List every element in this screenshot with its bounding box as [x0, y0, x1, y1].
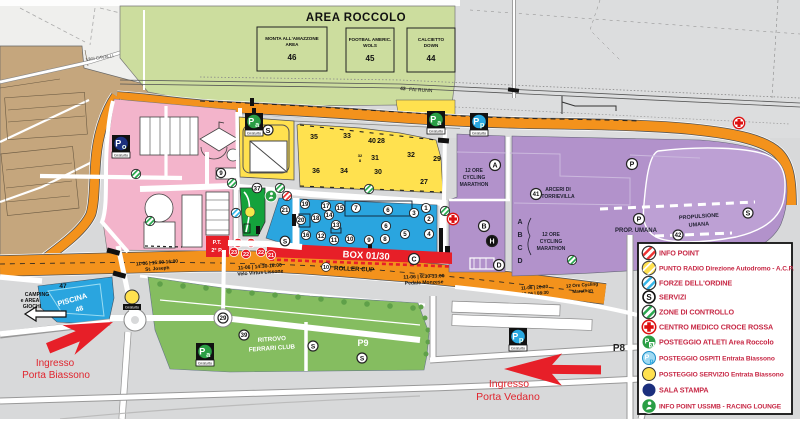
svg-text:POSTEGGIO OSPITI Entrata Biass: POSTEGGIO OSPITI Entrata Biassono — [659, 356, 775, 363]
svg-text:o: o — [122, 142, 127, 151]
svg-text:17: 17 — [323, 203, 330, 210]
svg-text:P8: P8 — [613, 343, 626, 354]
svg-text:B: B — [517, 232, 522, 239]
svg-text:13: 13 — [333, 222, 340, 229]
svg-text:TORRIEVILLA: TORRIEVILLA — [541, 194, 575, 200]
svg-text:FOOTBAL AMERIC.: FOOTBAL AMERIC. — [349, 37, 392, 42]
svg-text:H: H — [489, 239, 494, 246]
svg-text:Gratuito: Gratuito — [247, 131, 262, 136]
svg-text:P: P — [115, 139, 121, 149]
svg-text:Gratuito: Gratuito — [429, 129, 444, 134]
svg-text:37: 37 — [253, 186, 261, 193]
svg-text:FAI RUNN: FAI RUNN — [409, 87, 433, 94]
svg-text:S: S — [746, 211, 751, 218]
svg-text:45: 45 — [366, 54, 375, 63]
svg-text:ZONE DI CONTROLLO: ZONE DI CONTROLLO — [659, 308, 734, 317]
svg-text:p: p — [519, 335, 524, 344]
svg-text:P.T.: P.T. — [213, 240, 222, 246]
svg-text:21: 21 — [282, 207, 289, 214]
svg-text:Porta Vedano: Porta Vedano — [476, 391, 540, 403]
svg-text:32: 32 — [407, 152, 415, 159]
svg-text:10: 10 — [323, 265, 329, 271]
svg-text:12: 12 — [318, 233, 325, 240]
svg-text:28: 28 — [377, 138, 385, 145]
svg-text:p: p — [650, 358, 654, 365]
svg-text:C: C — [411, 257, 416, 264]
svg-text:DOWN: DOWN — [424, 43, 439, 48]
svg-text:P: P — [199, 347, 205, 357]
svg-text:41: 41 — [533, 192, 540, 198]
svg-text:Ingresso: Ingresso — [36, 358, 75, 369]
svg-text:35: 35 — [310, 134, 318, 141]
svg-text:A: A — [492, 163, 497, 170]
svg-text:FORZE DELL'ORDINE: FORZE DELL'ORDINE — [659, 279, 732, 288]
svg-text:47: 47 — [59, 283, 67, 290]
svg-text:P: P — [630, 162, 635, 169]
svg-text:9: 9 — [367, 237, 371, 244]
svg-text:ARCERI DI: ARCERI DI — [545, 187, 571, 193]
svg-text:40: 40 — [368, 138, 376, 145]
svg-text:INFO POINT USSMB - RACING LOUN: INFO POINT USSMB - RACING LOUNGE — [659, 404, 782, 411]
svg-text:8: 8 — [383, 236, 387, 243]
svg-text:Gratuito: Gratuito — [472, 131, 487, 136]
svg-text:Ingresso: Ingresso — [489, 378, 529, 390]
svg-text:22: 22 — [258, 250, 264, 256]
svg-text:12 ORE: 12 ORE — [542, 232, 560, 238]
svg-text:P9: P9 — [357, 338, 368, 348]
svg-text:Porta Biassono: Porta Biassono — [22, 370, 90, 381]
svg-text:D: D — [517, 258, 522, 265]
svg-text:S: S — [646, 293, 652, 302]
svg-text:5: 5 — [403, 231, 407, 238]
svg-text:31: 31 — [371, 155, 379, 162]
svg-text:AREA ROCCOLO: AREA ROCCOLO — [306, 12, 406, 24]
svg-text:S: S — [311, 343, 316, 350]
svg-text:2° P.: 2° P. — [211, 248, 223, 254]
svg-text:SALA STAMPA: SALA STAMPA — [659, 386, 708, 395]
svg-text:C: C — [517, 245, 522, 252]
svg-text:Gratuito: Gratuito — [114, 153, 129, 158]
svg-text:WOLS: WOLS — [363, 43, 377, 48]
svg-text:P: P — [248, 117, 254, 127]
svg-text:POSTEGGIO SERVIZIO Entrata Bia: POSTEGGIO SERVIZIO Entrata Biassono — [659, 372, 784, 379]
svg-text:S: S — [283, 238, 288, 245]
svg-text:S: S — [360, 355, 365, 362]
svg-text:11: 11 — [331, 237, 338, 244]
svg-text:33: 33 — [343, 133, 351, 140]
svg-text:4: 4 — [427, 231, 431, 238]
svg-text:46: 46 — [288, 53, 297, 62]
svg-text:12 ORE: 12 ORE — [465, 168, 483, 174]
svg-text:22: 22 — [243, 252, 249, 258]
svg-text:P: P — [473, 117, 479, 127]
svg-text:3: 3 — [412, 210, 416, 217]
svg-text:PUNTO RADIO Direzione Autodrom: PUNTO RADIO Direzione Autodromo - A.C.P. — [659, 266, 794, 273]
svg-text:CALCIETTO: CALCIETTO — [418, 37, 445, 42]
svg-text:18: 18 — [313, 215, 320, 222]
svg-text:36: 36 — [312, 168, 320, 175]
svg-text:21: 21 — [268, 253, 274, 259]
svg-text:P: P — [637, 217, 642, 224]
svg-text:p: p — [480, 120, 485, 129]
svg-text:P: P — [430, 115, 436, 125]
svg-text:34: 34 — [340, 168, 348, 175]
svg-text:20: 20 — [298, 217, 305, 224]
svg-text:27: 27 — [420, 179, 428, 186]
svg-text:INFO POINT: INFO POINT — [659, 249, 700, 258]
svg-text:Gratuito: Gratuito — [511, 346, 526, 351]
svg-text:29: 29 — [220, 316, 227, 322]
svg-text:MARATHON: MARATHON — [460, 182, 489, 188]
svg-text:A: A — [517, 219, 522, 226]
svg-text:PROP. UMANA: PROP. UMANA — [615, 228, 658, 234]
svg-text:Gratuito: Gratuito — [198, 361, 213, 366]
svg-text:1: 1 — [424, 205, 428, 212]
svg-text:43: 43 — [400, 86, 406, 92]
svg-text:2: 2 — [427, 216, 431, 223]
svg-text:19: 19 — [302, 201, 309, 208]
svg-text:16: 16 — [303, 232, 310, 239]
svg-text:7: 7 — [354, 205, 358, 212]
svg-text:15: 15 — [337, 205, 344, 212]
svg-text:42: 42 — [675, 233, 682, 239]
svg-text:B: B — [481, 224, 486, 231]
svg-text:CYCLING: CYCLING — [540, 239, 563, 245]
svg-text:6: 6 — [386, 207, 390, 214]
svg-text:P: P — [645, 339, 650, 346]
svg-text:D: D — [496, 263, 501, 270]
svg-text:AREA: AREA — [285, 42, 299, 47]
svg-text:39: 39 — [241, 333, 248, 339]
svg-text:44: 44 — [427, 54, 436, 63]
svg-text:10: 10 — [347, 236, 354, 243]
svg-text:MONTA ALL'AMAZZONE: MONTA ALL'AMAZZONE — [265, 36, 319, 41]
svg-text:S: S — [265, 126, 270, 135]
svg-text:SERVIZI: SERVIZI — [659, 293, 686, 302]
svg-text:Gratuito: Gratuito — [125, 305, 140, 310]
svg-text:CYCLING: CYCLING — [463, 175, 486, 181]
svg-text:23: 23 — [231, 250, 237, 256]
svg-text:MARATHON: MARATHON — [537, 246, 566, 252]
svg-text:14: 14 — [326, 212, 333, 219]
svg-text:6: 6 — [384, 223, 388, 230]
svg-text:POSTEGGIO ATLETI Area Roccolo: POSTEGGIO ATLETI Area Roccolo — [659, 338, 774, 347]
svg-text:P: P — [512, 332, 518, 342]
svg-text:CENTRO MEDICO CROCE ROSSA: CENTRO MEDICO CROCE ROSSA — [659, 323, 773, 332]
svg-text:29: 29 — [433, 156, 441, 163]
svg-text:30: 30 — [374, 169, 382, 176]
